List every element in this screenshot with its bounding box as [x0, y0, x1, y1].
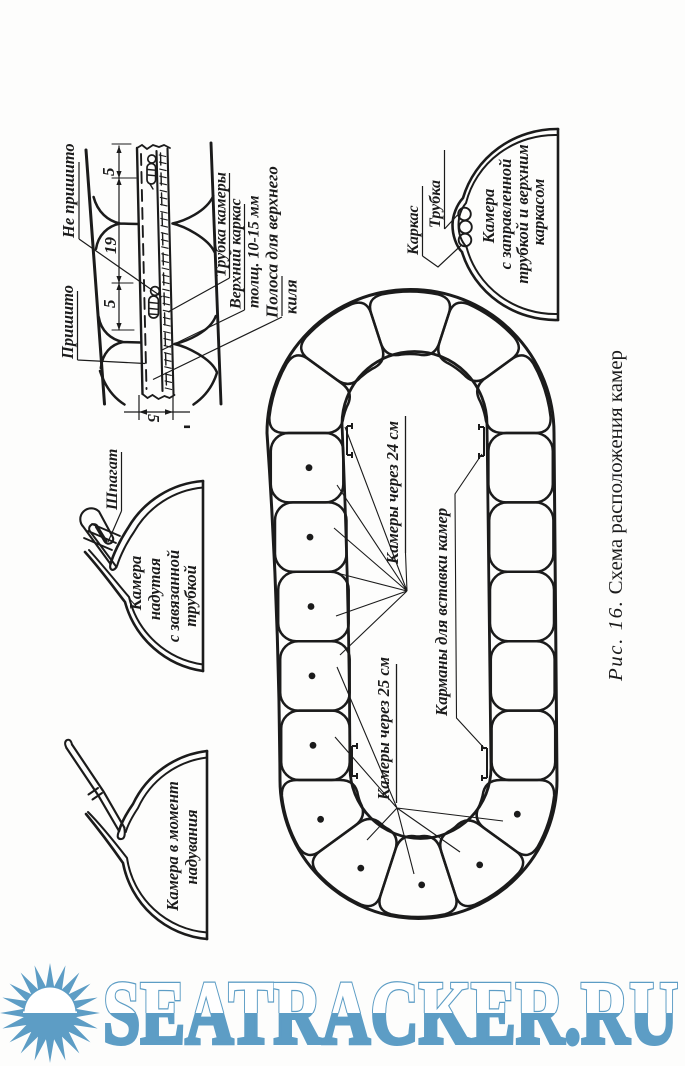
svg-text:Камера: Камера	[126, 556, 145, 612]
svg-text:каркасом: каркасом	[529, 179, 548, 246]
svg-text:Трубка: Трубка	[427, 180, 444, 228]
svg-text:Камеры через 25 см: Камеры через 25 см	[374, 657, 393, 801]
svg-text:Камеры через 24 см: Камеры через 24 см	[383, 421, 402, 565]
svg-text:Верхний каркас: Верхний каркас	[228, 198, 245, 310]
svg-text:5: 5	[144, 414, 163, 423]
svg-text:19: 19	[101, 237, 120, 255]
svg-text:Полоса для верхнего: Полоса для верхнего	[263, 166, 282, 319]
svg-text:Рис. 16. Схема расположения ка: Рис. 16. Схема расположения камер	[605, 350, 627, 682]
svg-text:Не пришито: Не пришито	[59, 143, 78, 239]
svg-text:Карманы для вставки камер: Карманы для вставки камер	[432, 508, 451, 717]
svg-text:Каркас: Каркас	[405, 205, 422, 256]
svg-text:надутая: надутая	[145, 558, 164, 620]
svg-text:5: 5	[100, 299, 119, 308]
svg-text:Камера в момент: Камера в момент	[163, 781, 182, 912]
svg-text:трубкой: трубкой	[181, 565, 200, 627]
svg-text:киля: киля	[282, 279, 301, 314]
svg-text:5: 5	[99, 167, 118, 176]
svg-text:надувания: надувания	[182, 809, 201, 884]
svg-text:Шпагат: Шпагат	[104, 449, 121, 511]
svg-text:толщ. 10-15 мм: толщ. 10-15 мм	[246, 195, 263, 308]
svg-text:Пришито: Пришито	[58, 285, 77, 360]
